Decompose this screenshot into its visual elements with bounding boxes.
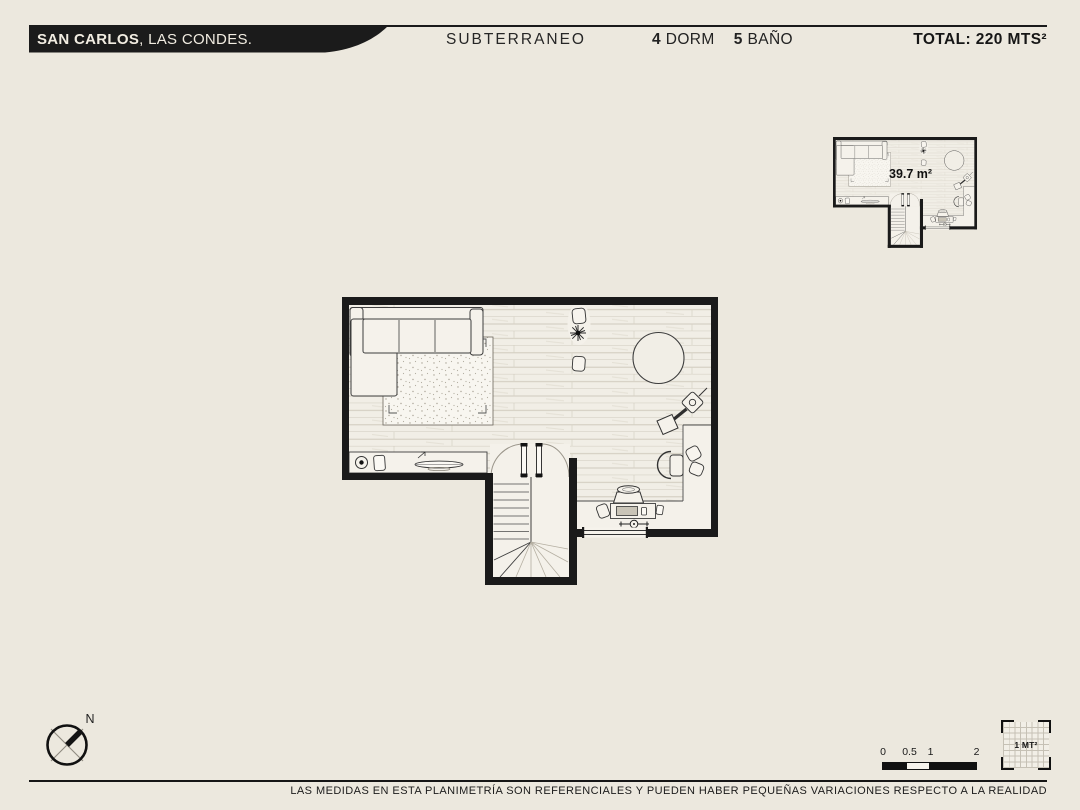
scale-tick-05: 0.5 — [902, 746, 917, 758]
mini-plan-area-label: 39.7 m² — [889, 167, 932, 181]
scale-tick-0: 0 — [880, 746, 886, 758]
scale-segment-light — [906, 762, 930, 770]
north-label: N — [86, 712, 95, 726]
footer-rule — [29, 780, 1047, 782]
scale-bar: 0 0.5 1 2 — [876, 746, 988, 774]
main-floor-plan — [342, 297, 718, 585]
scale-tick-1: 1 — [928, 746, 934, 758]
scale-tick-2: 2 — [974, 746, 980, 758]
disclaimer-text: LAS MEDIDAS EN ESTA PLANIMETRÍA SON REFE… — [290, 785, 1047, 797]
planimetry-page: SAN CARLOS, LAS CONDES. SUBTERRANEO 4 DO… — [0, 0, 1080, 810]
floor-plan-layer: 39.7 m² N — [0, 0, 1080, 810]
scale-bar-segments — [882, 762, 977, 770]
north-needle-icon — [67, 732, 81, 746]
square-meter-legend: 1 MT² — [1003, 722, 1049, 768]
scale-segment-dark-1 — [882, 762, 906, 770]
compass: N — [48, 712, 95, 765]
square-meter-label: 1 MT² — [1003, 722, 1049, 768]
scale-segment-dark-2 — [930, 762, 977, 770]
mini-floor-plan — [833, 137, 977, 248]
